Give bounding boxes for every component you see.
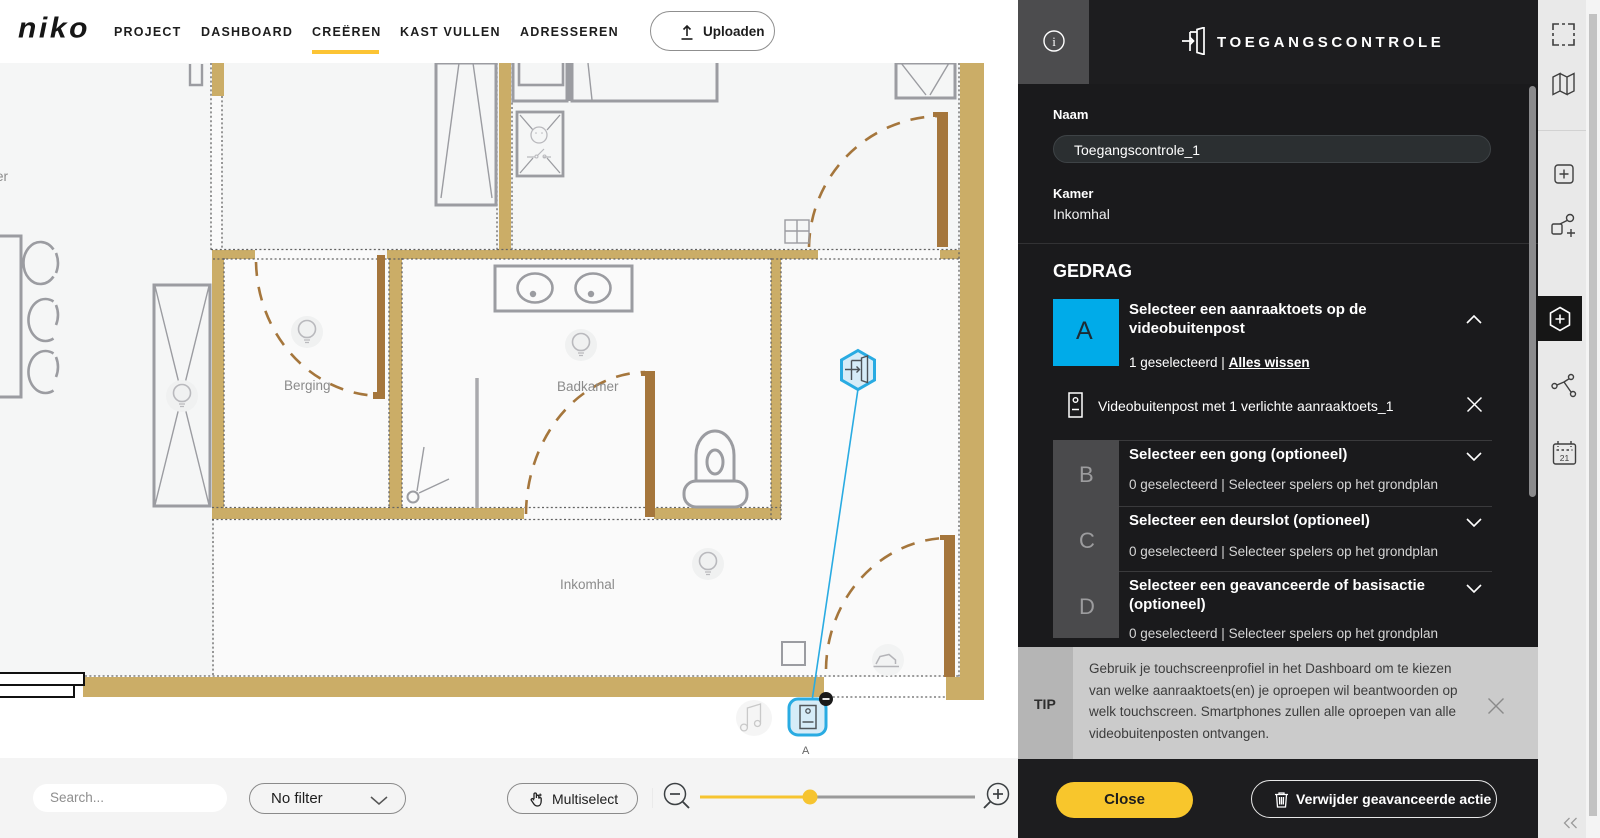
svg-text:er: er: [0, 169, 9, 184]
svg-text:Inkomhal: Inkomhal: [560, 577, 615, 592]
svg-text:A: A: [802, 745, 810, 757]
svg-text:21: 21: [1560, 453, 1570, 463]
svg-text:i: i: [1052, 34, 1056, 49]
svg-text:Badkamer: Badkamer: [557, 379, 619, 394]
svg-text:Berging: Berging: [284, 378, 331, 393]
